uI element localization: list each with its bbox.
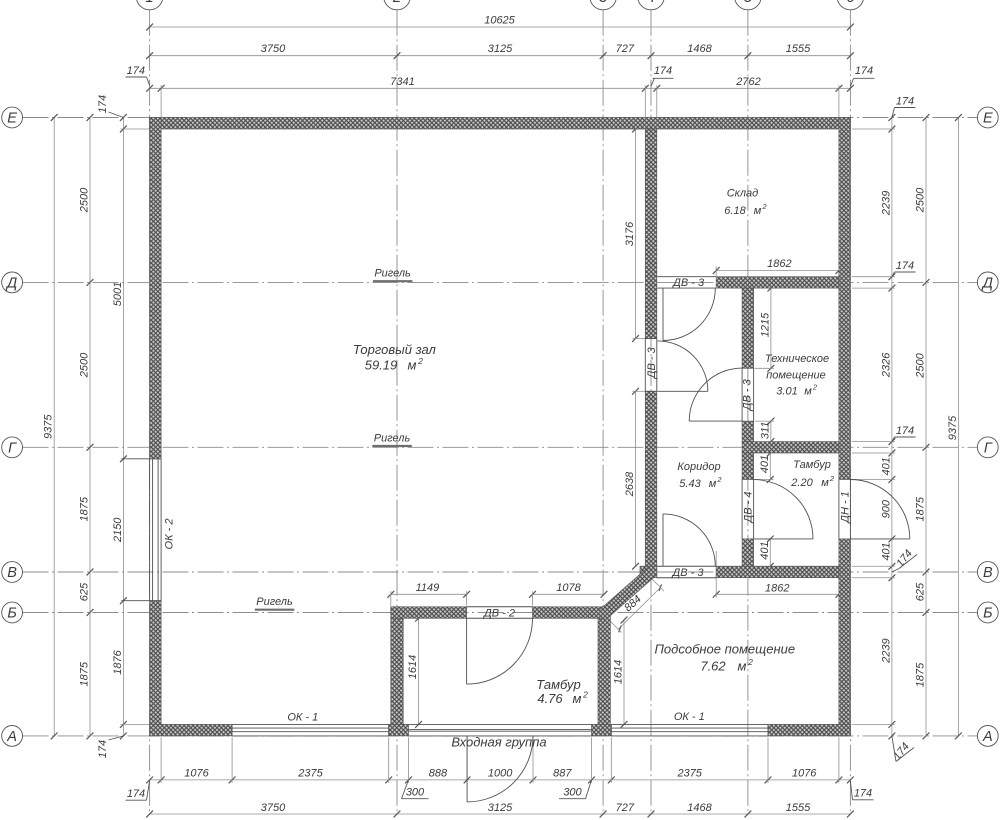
svg-text:Д: Д — [5, 276, 17, 292]
svg-text:помещение: помещение — [766, 370, 826, 382]
svg-text:2239: 2239 — [880, 191, 892, 216]
svg-text:Торговый зал: Торговый зал — [353, 342, 437, 357]
svg-text:Тамбур: Тамбур — [793, 459, 831, 471]
svg-text:2500: 2500 — [79, 187, 91, 213]
svg-text:Е: Е — [983, 111, 993, 127]
svg-text:м: м — [408, 358, 417, 373]
svg-text:401: 401 — [759, 541, 771, 559]
svg-text:1078: 1078 — [556, 582, 581, 594]
svg-text:174: 174 — [854, 788, 872, 800]
svg-text:3176: 3176 — [624, 221, 636, 246]
svg-text:Г: Г — [8, 441, 17, 457]
svg-text:401: 401 — [880, 457, 892, 475]
svg-text:727: 727 — [616, 802, 635, 814]
svg-text:1149: 1149 — [416, 582, 440, 594]
svg-text:2: 2 — [812, 383, 818, 392]
svg-text:300: 300 — [406, 787, 425, 799]
svg-text:ОК - 1: ОК - 1 — [287, 712, 318, 724]
svg-text:9375: 9375 — [43, 414, 55, 439]
svg-text:4.76: 4.76 — [537, 691, 563, 706]
svg-text:900: 900 — [880, 499, 892, 518]
svg-text:2: 2 — [392, 0, 402, 6]
svg-text:ДВ - 3: ДВ - 3 — [671, 277, 705, 289]
svg-text:м: м — [738, 659, 747, 674]
svg-text:1000: 1000 — [488, 768, 513, 780]
svg-text:ДВ - 3: ДВ - 3 — [646, 346, 658, 380]
svg-text:5001: 5001 — [112, 282, 124, 306]
svg-text:Склад: Склад — [727, 188, 759, 200]
svg-text:1875: 1875 — [915, 662, 927, 687]
svg-text:Входная группа: Входная группа — [451, 735, 546, 750]
svg-text:2500: 2500 — [915, 352, 927, 378]
svg-text:2500: 2500 — [79, 352, 91, 378]
svg-text:174: 174 — [654, 65, 672, 77]
svg-text:ДН - 1: ДН - 1 — [839, 491, 851, 525]
svg-text:888: 888 — [429, 768, 448, 780]
svg-text:1468: 1468 — [687, 802, 712, 814]
svg-text:Б: Б — [983, 606, 992, 622]
svg-text:1614: 1614 — [407, 655, 419, 679]
svg-text:7341: 7341 — [390, 76, 414, 88]
svg-text:2239: 2239 — [880, 638, 892, 663]
svg-text:м: м — [821, 477, 829, 489]
svg-text:401: 401 — [759, 455, 771, 473]
svg-text:401: 401 — [880, 542, 892, 560]
svg-text:2: 2 — [747, 657, 753, 667]
svg-text:6.18: 6.18 — [724, 205, 746, 217]
svg-text:1: 1 — [145, 0, 153, 6]
svg-text:174: 174 — [855, 65, 873, 77]
svg-text:Б: Б — [7, 606, 16, 622]
svg-text:Е: Е — [7, 111, 17, 127]
svg-text:727: 727 — [616, 43, 635, 55]
svg-text:1614: 1614 — [613, 660, 625, 684]
svg-text:2: 2 — [829, 474, 835, 483]
svg-text:ОК - 2: ОК - 2 — [164, 519, 176, 550]
svg-text:59.19: 59.19 — [365, 358, 398, 373]
svg-text:1555: 1555 — [786, 43, 811, 55]
svg-text:625: 625 — [915, 582, 927, 601]
svg-text:Подсобное помещение: Подсобное помещение — [655, 642, 796, 657]
svg-text:м: м — [709, 478, 717, 490]
svg-text:7.62: 7.62 — [700, 659, 726, 674]
svg-text:3750: 3750 — [261, 802, 286, 814]
svg-text:174: 174 — [896, 425, 914, 437]
svg-text:2375: 2375 — [297, 768, 323, 780]
svg-text:ДВ - 4: ДВ - 4 — [743, 492, 755, 525]
svg-text:1875: 1875 — [915, 496, 927, 521]
svg-text:10625: 10625 — [484, 15, 515, 27]
svg-text:2.20: 2.20 — [790, 477, 813, 489]
svg-text:2: 2 — [761, 202, 767, 211]
svg-text:5.43: 5.43 — [679, 478, 701, 490]
svg-text:3125: 3125 — [488, 802, 513, 814]
svg-text:В: В — [7, 565, 17, 581]
svg-text:1862: 1862 — [767, 258, 791, 270]
svg-text:1875: 1875 — [79, 496, 91, 521]
svg-text:3750: 3750 — [261, 43, 286, 55]
svg-text:ОК - 1: ОК - 1 — [674, 711, 705, 723]
svg-text:2: 2 — [417, 356, 423, 366]
svg-text:174: 174 — [127, 65, 145, 77]
svg-text:174: 174 — [127, 788, 145, 800]
svg-text:3: 3 — [599, 0, 608, 6]
svg-text:Г: Г — [984, 441, 993, 457]
svg-text:А: А — [6, 729, 17, 745]
svg-text:6: 6 — [846, 0, 855, 6]
svg-text:2500: 2500 — [915, 187, 927, 213]
svg-text:Тамбур: Тамбур — [536, 677, 581, 692]
svg-text:1076: 1076 — [184, 768, 209, 780]
svg-text:887: 887 — [553, 768, 572, 780]
svg-text:2638: 2638 — [624, 471, 636, 497]
svg-text:174: 174 — [896, 260, 914, 272]
svg-text:625: 625 — [79, 582, 91, 601]
svg-text:В: В — [983, 565, 993, 581]
svg-text:1862: 1862 — [765, 582, 789, 594]
svg-text:ДВ - 3: ДВ - 3 — [742, 378, 754, 412]
svg-text:ДВ - 2: ДВ - 2 — [482, 607, 515, 619]
svg-text:2150: 2150 — [112, 517, 124, 543]
svg-text:А: А — [982, 729, 993, 745]
svg-text:174: 174 — [97, 740, 109, 758]
svg-text:2375: 2375 — [676, 768, 702, 780]
svg-text:м: м — [573, 691, 582, 706]
svg-text:311: 311 — [759, 422, 771, 440]
svg-text:1876: 1876 — [112, 649, 124, 674]
svg-text:1875: 1875 — [79, 661, 91, 686]
svg-text:3.01: 3.01 — [776, 386, 797, 398]
svg-text:174: 174 — [97, 95, 109, 113]
svg-text:2762: 2762 — [735, 76, 760, 88]
svg-text:м: м — [754, 205, 762, 217]
svg-text:1555: 1555 — [786, 802, 811, 814]
svg-text:Д: Д — [981, 276, 993, 292]
svg-text:4: 4 — [647, 0, 655, 6]
svg-text:2326: 2326 — [880, 352, 892, 378]
svg-text:2: 2 — [582, 690, 588, 700]
svg-text:3125: 3125 — [488, 43, 513, 55]
svg-text:Техническое: Техническое — [765, 353, 829, 365]
svg-text:300: 300 — [563, 787, 582, 799]
svg-text:ДВ - 3: ДВ - 3 — [671, 567, 705, 579]
svg-text:2: 2 — [716, 475, 722, 484]
svg-text:Ригель: Ригель — [374, 433, 411, 445]
svg-text:1468: 1468 — [687, 43, 712, 55]
svg-text:м: м — [804, 386, 812, 398]
svg-text:Ригель: Ригель — [374, 268, 411, 280]
svg-text:9375: 9375 — [947, 415, 959, 440]
svg-text:1076: 1076 — [792, 768, 817, 780]
svg-text:5: 5 — [744, 0, 753, 6]
svg-text:Коридор: Коридор — [677, 461, 720, 473]
svg-text:Ригель: Ригель — [256, 596, 293, 608]
svg-text:174: 174 — [896, 95, 914, 107]
svg-text:1215: 1215 — [759, 312, 771, 337]
